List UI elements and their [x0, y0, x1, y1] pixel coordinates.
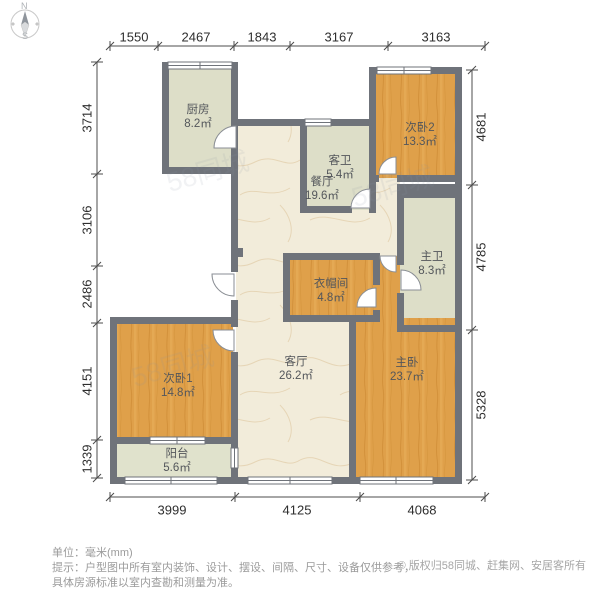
copyright-notice: © 版权归58同城、赶集网、安居客所有: [398, 557, 586, 573]
room-area: 8.2㎡: [184, 117, 212, 131]
footer-unit-line: 单位：毫米(mm): [52, 544, 133, 560]
dim-left-5: 1339: [80, 445, 95, 474]
dim-left-1: 3714: [80, 104, 95, 133]
balcony-window: [125, 477, 217, 484]
room-label-closet: 衣帽间 4.8㎡: [314, 277, 349, 305]
dim-left-4: 4151: [80, 367, 95, 396]
room-label-kitchen: 厨房 8.2㎡: [184, 103, 212, 131]
dim-top-4: 3167: [325, 30, 354, 45]
room-name: 阳台: [166, 447, 189, 461]
room-name: 衣帽间: [314, 277, 349, 291]
room-label-balcony: 阳台 5.6㎡: [163, 447, 191, 475]
floorplan-page: N S 58同城 58同城 58同城 厨房 8.2㎡ 餐厅 19.6㎡ 客卫 5…: [0, 0, 600, 600]
corridor-floor: [372, 178, 400, 260]
footer-tip-line1: 提示：户型图中所有室内装饰、设计、摆设、间隔、尺寸、设备仅供参考，: [52, 559, 415, 575]
room-area: 5.6㎡: [163, 461, 191, 475]
footer-tip-line2: 具体房源标准以室内查勘和测量为准。: [52, 574, 239, 590]
room-area: 26.2㎡: [279, 369, 313, 383]
room-area: 23.7㎡: [390, 370, 424, 384]
dim-right-3: 5328: [474, 391, 489, 420]
living-window: [248, 477, 332, 484]
room-area: 5.4㎡: [326, 168, 354, 182]
room-label-guest-bath: 客卫 5.4㎡: [326, 154, 354, 182]
kitchen-window: [168, 62, 232, 69]
dim-bottom-1: 3999: [158, 503, 187, 518]
dim-top-1: 1550: [120, 30, 149, 45]
room-area: 13.3㎡: [403, 135, 437, 149]
dim-left-3: 2486: [80, 280, 95, 309]
bedroom2-window: [377, 67, 431, 74]
room-name: 客卫: [329, 154, 352, 168]
dim-top-2: 2467: [182, 30, 211, 45]
room-name: 客厅: [284, 355, 307, 369]
room-name: 次卧2: [405, 121, 434, 135]
dim-top-3: 1843: [248, 30, 277, 45]
dim-right-2: 4785: [474, 243, 489, 272]
dim-left-2: 3106: [80, 206, 95, 235]
room-label-master-bath: 主卫 8.3㎡: [418, 250, 446, 278]
compass-south-label: S: [22, 31, 28, 41]
dim-bottom-3: 4068: [408, 503, 437, 518]
room-name: 主卧: [395, 356, 418, 370]
room-label-master-bedroom: 主卧 23.7㎡: [390, 356, 424, 384]
room-area: 19.6㎡: [305, 189, 339, 203]
master-bedroom-window: [360, 477, 433, 484]
master-bedroom-floor: [352, 318, 458, 480]
room-label-bedroom1: 次卧1 14.8㎡: [161, 372, 195, 400]
room-area: 8.3㎡: [418, 264, 446, 278]
bedroom1-balcony-door: [150, 437, 205, 444]
room-label-living: 客厅 26.2㎡: [279, 355, 313, 383]
room-name: 厨房: [187, 103, 210, 117]
entry-door: [212, 274, 234, 296]
room-area: 4.8㎡: [317, 291, 345, 305]
room-name: 次卧1: [163, 372, 192, 386]
room-area: 14.8㎡: [161, 386, 195, 400]
compass-north-label: N: [21, 1, 28, 11]
room-label-bedroom2: 次卧2 13.3㎡: [403, 121, 437, 149]
dim-bottom-2: 4125: [283, 503, 312, 518]
living-balcony-window: [231, 448, 238, 468]
guest-bath-window: [305, 119, 331, 126]
room-name: 主卫: [421, 250, 444, 264]
dim-top-5: 3163: [422, 30, 451, 45]
dim-right-1: 4681: [474, 113, 489, 142]
